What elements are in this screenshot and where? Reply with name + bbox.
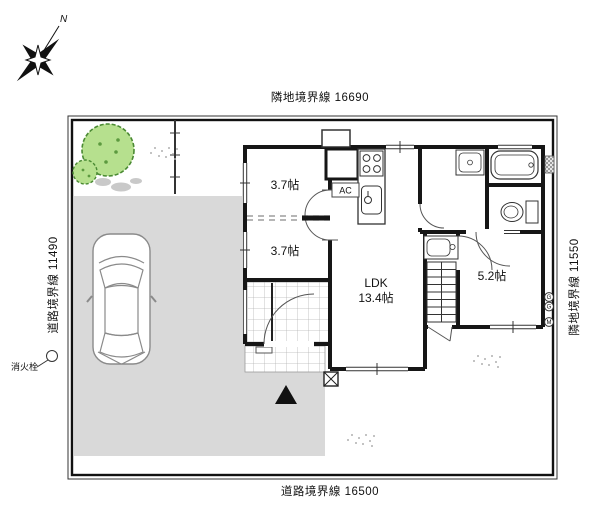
small-tree-icon — [73, 160, 97, 184]
stone-icon — [130, 178, 142, 184]
stone-icon — [95, 178, 111, 186]
ac-label-box: AC — [332, 183, 359, 197]
ac-label: AC — [339, 186, 352, 196]
washbasin-icon — [424, 236, 458, 259]
compass-icon: N — [1, 14, 75, 97]
car-icon — [87, 234, 156, 364]
compass-north-label: N — [60, 14, 68, 25]
sink-icon — [362, 186, 382, 214]
room-label-west-lower: 3.7帖 — [271, 243, 300, 258]
dimension-left: 道路境界線 11490 — [46, 236, 60, 333]
ldk-area-label: 13.4帖 — [358, 290, 393, 305]
bay-box — [322, 130, 350, 147]
room-label-west-upper: 3.7帖 — [271, 177, 300, 192]
dimension-right: 隣地境界線 11550 — [567, 238, 581, 335]
floor-plan-drawing: G G M N 消火栓 隣地境界線 16690 道路境界線 16500 道路境界… — [0, 0, 602, 521]
ldk-label: LDK — [364, 276, 387, 290]
dimension-bottom: 道路境界線 16500 — [281, 484, 379, 498]
meter-label: G — [547, 305, 552, 311]
entrance-tiles — [245, 282, 330, 372]
toilet-icon — [501, 201, 538, 223]
fire-hydrant-icon: 消火栓 — [11, 351, 58, 373]
drain-box-icon — [324, 372, 338, 386]
room-label-east: 5.2帖 — [478, 268, 507, 283]
ac-closet — [326, 149, 358, 179]
stone-icon — [111, 183, 131, 192]
fire-hydrant-label: 消火栓 — [11, 361, 38, 372]
kitchen-counter — [358, 149, 385, 224]
stove-icon — [360, 151, 383, 176]
staircase — [427, 262, 456, 322]
meter-label: M — [547, 320, 552, 326]
meter-label: G — [547, 295, 552, 301]
partition-dashed — [247, 216, 330, 220]
dimension-top: 隣地境界線 16690 — [271, 90, 369, 104]
floor-plan-page: G G M N 消火栓 隣地境界線 16690 道路境界線 16500 道路境界… — [0, 0, 602, 521]
vent-hatch — [545, 156, 554, 173]
bathtub-icon — [491, 151, 538, 179]
garden — [73, 120, 180, 194]
meter-icons: G G M — [545, 293, 554, 327]
washing-machine-icon — [456, 150, 484, 175]
